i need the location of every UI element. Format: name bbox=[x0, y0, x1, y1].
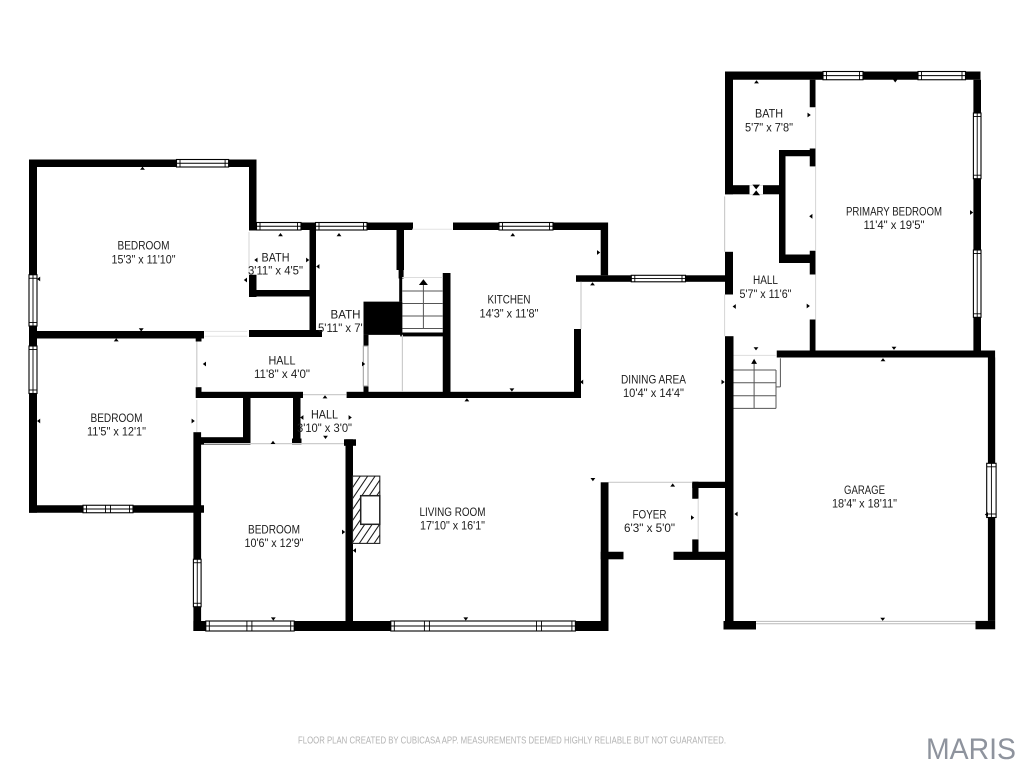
svg-text:3'10" x 3'0": 3'10" x 3'0" bbox=[297, 421, 352, 435]
svg-text:11'8" x 4'0": 11'8" x 4'0" bbox=[254, 367, 310, 381]
svg-text:GARAGE: GARAGE bbox=[844, 483, 885, 497]
svg-text:HALL: HALL bbox=[311, 408, 338, 422]
svg-text:DINING AREA: DINING AREA bbox=[621, 373, 687, 387]
svg-text:5'7" x 11'6": 5'7" x 11'6" bbox=[740, 287, 792, 301]
svg-text:10'4" x 14'4": 10'4" x 14'4" bbox=[623, 386, 684, 400]
svg-text:HALL: HALL bbox=[269, 354, 296, 368]
svg-text:FLOOR PLAN CREATED BY CUBICASA: FLOOR PLAN CREATED BY CUBICASA APP. MEAS… bbox=[298, 736, 726, 747]
svg-text:3'11" x 4'5": 3'11" x 4'5" bbox=[248, 264, 303, 278]
svg-text:17'10" x 16'1": 17'10" x 16'1" bbox=[420, 519, 485, 533]
svg-text:14'3" x 11'8": 14'3" x 11'8" bbox=[480, 307, 539, 321]
svg-text:18'4" x 18'11": 18'4" x 18'11" bbox=[832, 497, 897, 511]
svg-text:5'7" x 7'8": 5'7" x 7'8" bbox=[745, 121, 793, 135]
svg-text:11'5" x 12'1": 11'5" x 12'1" bbox=[87, 425, 146, 439]
svg-text:15'3" x 11'10": 15'3" x 11'10" bbox=[112, 253, 176, 267]
svg-text:10'6" x 12'9": 10'6" x 12'9" bbox=[245, 536, 304, 550]
svg-text:KITCHEN: KITCHEN bbox=[488, 293, 531, 307]
svg-text:FOYER: FOYER bbox=[633, 508, 667, 522]
svg-text:6'3" x 5'0": 6'3" x 5'0" bbox=[624, 521, 675, 535]
svg-text:BATH: BATH bbox=[262, 251, 290, 265]
svg-text:BATH: BATH bbox=[755, 107, 783, 121]
svg-text:MARIS: MARIS bbox=[926, 733, 1016, 766]
svg-text:BEDROOM: BEDROOM bbox=[91, 411, 143, 425]
svg-text:BEDROOM: BEDROOM bbox=[248, 523, 300, 537]
svg-text:BEDROOM: BEDROOM bbox=[118, 239, 170, 253]
svg-text:LIVING ROOM: LIVING ROOM bbox=[420, 505, 486, 519]
svg-text:BATH: BATH bbox=[331, 308, 361, 322]
svg-text:PRIMARY BEDROOM: PRIMARY BEDROOM bbox=[846, 205, 942, 219]
svg-text:HALL: HALL bbox=[753, 273, 778, 287]
svg-text:11'4" x 19'5": 11'4" x 19'5" bbox=[864, 218, 925, 232]
